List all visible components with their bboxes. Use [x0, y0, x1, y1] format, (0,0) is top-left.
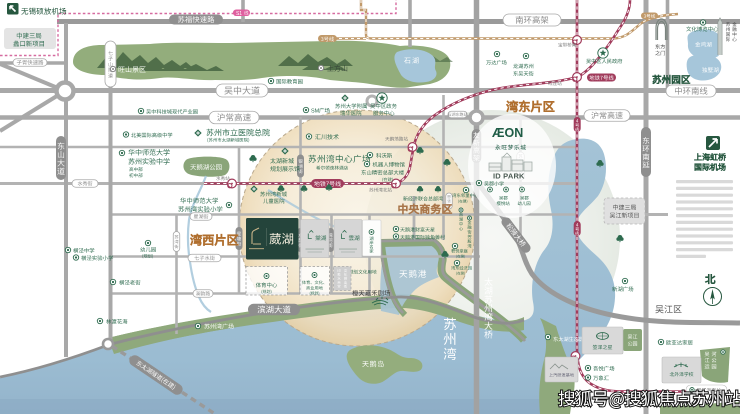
- svg-text:S1: S1: [236, 11, 242, 17]
- svg-text:SM: SM: [311, 109, 320, 115]
- svg-text:ID PARK: ID PARK: [493, 172, 525, 181]
- svg-text:ÆON: ÆON: [492, 126, 523, 140]
